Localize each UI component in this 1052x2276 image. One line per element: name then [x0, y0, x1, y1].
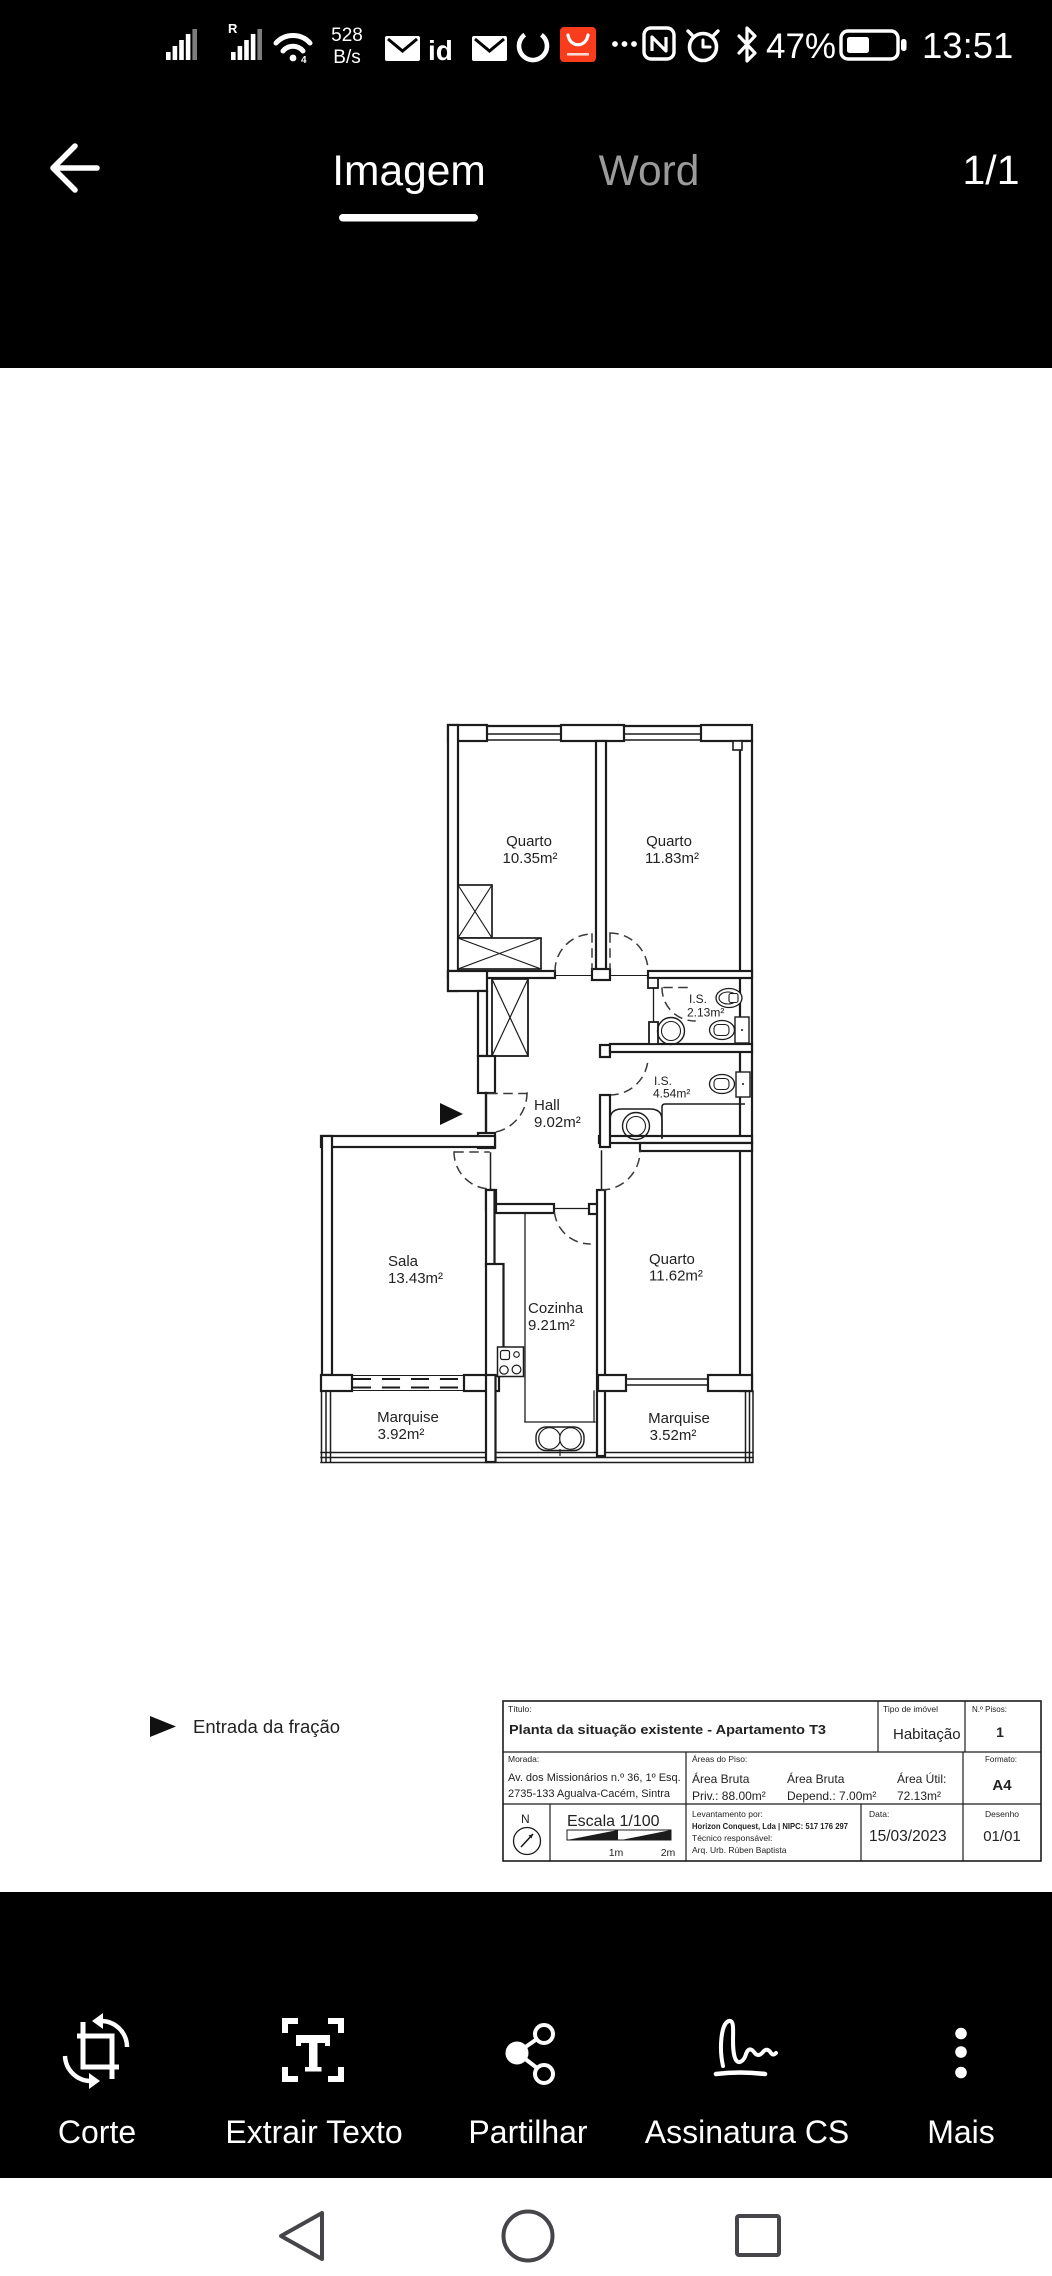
svg-text:Habitação: Habitação — [893, 1726, 961, 1743]
svg-text:Cozinha: Cozinha — [528, 1300, 584, 1317]
svg-text:N.º Pisos:: N.º Pisos: — [972, 1705, 1007, 1714]
svg-text:1: 1 — [996, 1724, 1004, 1740]
svg-text:Horizon Conquest, Lda | NIPC:: Horizon Conquest, Lda | NIPC: 517 176 29… — [692, 1821, 848, 1831]
svg-text:Título:: Título: — [508, 1704, 532, 1714]
svg-text:Tipo de imóvel: Tipo de imóvel — [883, 1704, 938, 1714]
svg-text:2.13m²: 2.13m² — [687, 1006, 724, 1020]
svg-text:9.02m²: 9.02m² — [534, 1114, 581, 1131]
svg-text:Áreas do Piso:: Áreas do Piso: — [692, 1754, 747, 1764]
svg-text:11.62m²: 11.62m² — [649, 1268, 703, 1285]
svg-text:Depend.: 7.00m²: Depend.: 7.00m² — [787, 1789, 876, 1803]
svg-text:Mais: Mais — [927, 2114, 995, 2150]
svg-text:Escala 1/100: Escala 1/100 — [567, 1813, 660, 1830]
svg-text:Quarto: Quarto — [506, 833, 552, 850]
svg-text:Quarto: Quarto — [649, 1251, 695, 1268]
svg-text:Word: Word — [599, 148, 700, 195]
svg-text:9.21m²: 9.21m² — [528, 1317, 575, 1334]
svg-text:Área Útil:: Área Útil: — [897, 1771, 946, 1786]
svg-text:Data:: Data: — [869, 1809, 889, 1819]
svg-text:Assinatura CS: Assinatura CS — [645, 2114, 850, 2150]
svg-text:13.43m²: 13.43m² — [388, 1270, 443, 1287]
svg-text:Marquise: Marquise — [648, 1410, 710, 1427]
svg-text:Quarto: Quarto — [646, 833, 692, 850]
svg-text:R: R — [228, 21, 238, 36]
svg-text:47%: 47% — [766, 27, 836, 66]
svg-text:11.83m²: 11.83m² — [645, 850, 699, 867]
svg-text:2735-133 Agualva-Cacém, Sintra: 2735-133 Agualva-Cacém, Sintra — [508, 1788, 671, 1800]
svg-text:Levantamento por:: Levantamento por: — [692, 1809, 763, 1819]
svg-text:Morada:: Morada: — [508, 1754, 539, 1764]
svg-text:id: id — [428, 35, 453, 66]
svg-text:3.92m²: 3.92m² — [378, 1426, 425, 1443]
svg-text:Área Bruta: Área Bruta — [787, 1771, 845, 1786]
svg-text:Desenho: Desenho — [985, 1809, 1019, 1819]
svg-text:13:51: 13:51 — [922, 25, 1013, 66]
svg-text:01/01: 01/01 — [983, 1828, 1021, 1845]
svg-text:Entrada da fração: Entrada da fração — [193, 1716, 340, 1737]
svg-text:Imagem: Imagem — [332, 148, 486, 195]
svg-text:2m: 2m — [661, 1847, 676, 1859]
svg-text:Sala: Sala — [388, 1253, 419, 1270]
svg-text:Corte: Corte — [58, 2114, 136, 2150]
svg-text:Partilhar: Partilhar — [468, 2114, 588, 2150]
svg-text:10.35m²: 10.35m² — [502, 850, 557, 867]
svg-text:Extrair Texto: Extrair Texto — [225, 2114, 402, 2150]
svg-text:Área Bruta: Área Bruta — [692, 1771, 750, 1786]
svg-text:1/1: 1/1 — [963, 147, 1020, 193]
svg-text:Av. dos Missionários n.º 36, 1: Av. dos Missionários n.º 36, 1º Esq. — [508, 1772, 681, 1784]
svg-text:Planta da situação existente -: Planta da situação existente - Apartamen… — [509, 1723, 826, 1737]
svg-text:1m: 1m — [609, 1847, 624, 1859]
svg-text:B/s: B/s — [333, 47, 360, 68]
svg-text:4.54m²: 4.54m² — [653, 1087, 690, 1101]
svg-text:Hall: Hall — [534, 1097, 560, 1114]
svg-text:Arq. Urb. Rúben Baptista: Arq. Urb. Rúben Baptista — [692, 1845, 787, 1855]
svg-text:528: 528 — [331, 25, 363, 46]
svg-text:I.S.: I.S. — [689, 992, 707, 1006]
svg-text:Técnico responsável:: Técnico responsável: — [692, 1833, 772, 1843]
svg-text:3.52m²: 3.52m² — [650, 1427, 697, 1444]
svg-text:Priv.: 88.00m²: Priv.: 88.00m² — [692, 1789, 766, 1803]
svg-text:Formato:: Formato: — [985, 1755, 1017, 1764]
svg-text:A4: A4 — [992, 1777, 1012, 1794]
svg-text:N: N — [521, 1812, 530, 1826]
svg-text:15/03/2023: 15/03/2023 — [869, 1828, 947, 1845]
svg-text:72.13m²: 72.13m² — [897, 1789, 941, 1803]
svg-text:4: 4 — [301, 55, 307, 66]
svg-text:Marquise: Marquise — [377, 1409, 439, 1426]
